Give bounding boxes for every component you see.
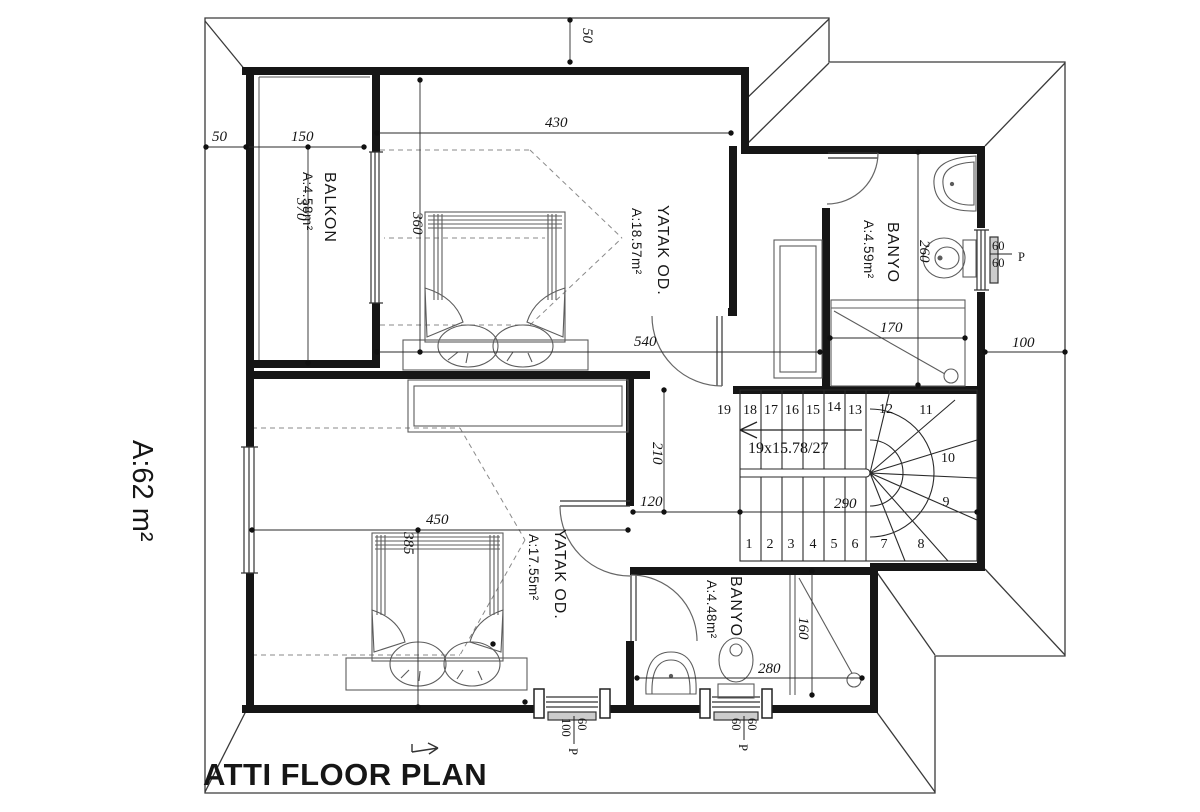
door-yatak1 (652, 316, 722, 386)
tread-10: 10 (941, 451, 955, 466)
window-label-banyo2: 60 60 P (729, 716, 759, 751)
tread-14: 14 (827, 400, 841, 415)
tread-7: 7 (881, 537, 888, 552)
window-label-yatak2: 60 100 P (559, 716, 589, 755)
dim-yatak2-d: 385 (400, 531, 416, 555)
tread-16: 16 (785, 403, 799, 418)
sink-banyo2 (646, 652, 696, 694)
section-mark-icon (412, 743, 438, 754)
window-banyo2-bottom (700, 689, 772, 720)
room-yatak2: YATAK OD. A:17.55m² (526, 529, 568, 620)
wardrobe (408, 380, 628, 432)
window-banyo1-p: P (1018, 250, 1025, 264)
tread-17: 17 (764, 403, 778, 418)
dim-yatak1-d: 360 (409, 211, 425, 235)
tread-15: 15 (806, 403, 820, 418)
dim-hall-d: 210 (649, 442, 665, 465)
room-yatak1-area: A:18.57m² (629, 208, 644, 275)
window-banyo1-bottom-val: 60 (992, 256, 1005, 270)
dim-banyo1-shower-w: 170 (880, 320, 903, 336)
staircase: 19 18 17 16 15 14 13 12 11 10 9 8 7 6 5 … (717, 390, 977, 561)
tread-9: 9 (943, 495, 950, 510)
dim-eave-left: 50 (212, 129, 228, 145)
door-banyo2 (631, 575, 697, 641)
window-yatak2-p: P (566, 748, 580, 755)
tread-1: 1 (746, 537, 753, 552)
tread-2: 2 (767, 537, 774, 552)
dim-eave-top: 50 (579, 28, 595, 44)
room-balkon-name: BALKON (321, 172, 338, 243)
room-yatak2-name: YATAK OD. (551, 529, 568, 620)
corridor-cabinet (774, 240, 822, 378)
stair-direction-arrow (740, 422, 862, 438)
tread-6: 6 (852, 537, 859, 552)
room-banyo1-area: A:4.59m² (861, 220, 876, 279)
total-area-label: A:62 m² (126, 440, 158, 542)
dim-eave-right: 100 (1012, 335, 1035, 351)
door-banyo1 (827, 153, 878, 204)
room-banyo1: BANYO A:4.59m² (861, 220, 901, 283)
room-balkon: BALKON A:4.58m² (300, 172, 338, 243)
dim-yatak1-w: 430 (545, 115, 568, 131)
room-banyo2: BANYO A:4.48m² (704, 576, 744, 639)
window-banyo2-a: 60 (745, 718, 759, 731)
tread-11: 11 (919, 403, 932, 418)
room-banyo2-area: A:4.48m² (704, 580, 719, 639)
window-yatak2-a: 60 (575, 718, 589, 731)
window-banyo2-b: 60 (729, 718, 743, 731)
window-banyo2-p: P (736, 744, 750, 751)
tread-19: 19 (717, 403, 731, 418)
shower-banyo1 (831, 300, 965, 386)
tread-13: 13 (848, 403, 862, 418)
window-left-wall (241, 447, 258, 573)
bed-yatak2 (346, 533, 527, 690)
room-banyo2-name: BANYO (727, 576, 744, 637)
window-balkon-divider (369, 152, 384, 303)
bed-yatak1 (403, 212, 588, 370)
window-label-banyo1: 60 60 P (990, 239, 1025, 270)
dim-balkon-w: 150 (291, 129, 314, 145)
window-yatak2-b: 100 (559, 718, 573, 737)
dim-banyo2-shower-d: 160 (795, 617, 811, 640)
tread-12: 12 (879, 402, 893, 417)
toilet-banyo2 (718, 638, 754, 698)
page-title: ATTI FLOOR PLAN (203, 757, 487, 792)
sink-banyo1 (934, 156, 976, 211)
tread-8: 8 (918, 537, 925, 552)
tread-4: 4 (810, 537, 817, 552)
tread-18: 18 (743, 403, 757, 418)
room-yatak2-area: A:17.55m² (526, 534, 541, 601)
door-yatak2 (560, 501, 630, 576)
window-banyo1-top-val: 60 (992, 239, 1005, 253)
tread-3: 3 (788, 537, 795, 552)
room-banyo1-name: BANYO (884, 222, 901, 283)
room-yatak1: YATAK OD. A:18.57m² (629, 205, 671, 296)
tread-5: 5 (831, 537, 838, 552)
dim-mid-w: 540 (634, 334, 657, 350)
dim-yatak2-w: 450 (426, 512, 449, 528)
floor-plan-drawing: 19 18 17 16 15 14 13 12 11 10 9 8 7 6 5 … (0, 0, 1200, 812)
dimension-labels: 50 50 150 430 360 370 540 170 100 260 21… (212, 28, 1035, 677)
floor-plan-page: 19 18 17 16 15 14 13 12 11 10 9 8 7 6 5 … (0, 0, 1200, 812)
dim-stair-w: 290 (834, 496, 857, 512)
dim-banyo2-w: 280 (758, 661, 781, 677)
dim-banyo1-d: 260 (916, 240, 932, 263)
dim-hall-w: 120 (640, 494, 663, 510)
room-yatak1-name: YATAK OD. (654, 205, 671, 296)
room-balkon-area: A:4.58m² (300, 172, 315, 231)
stair-spec-label: 19x15.78/27 (748, 440, 828, 457)
window-yatak2-bottom (534, 689, 610, 720)
